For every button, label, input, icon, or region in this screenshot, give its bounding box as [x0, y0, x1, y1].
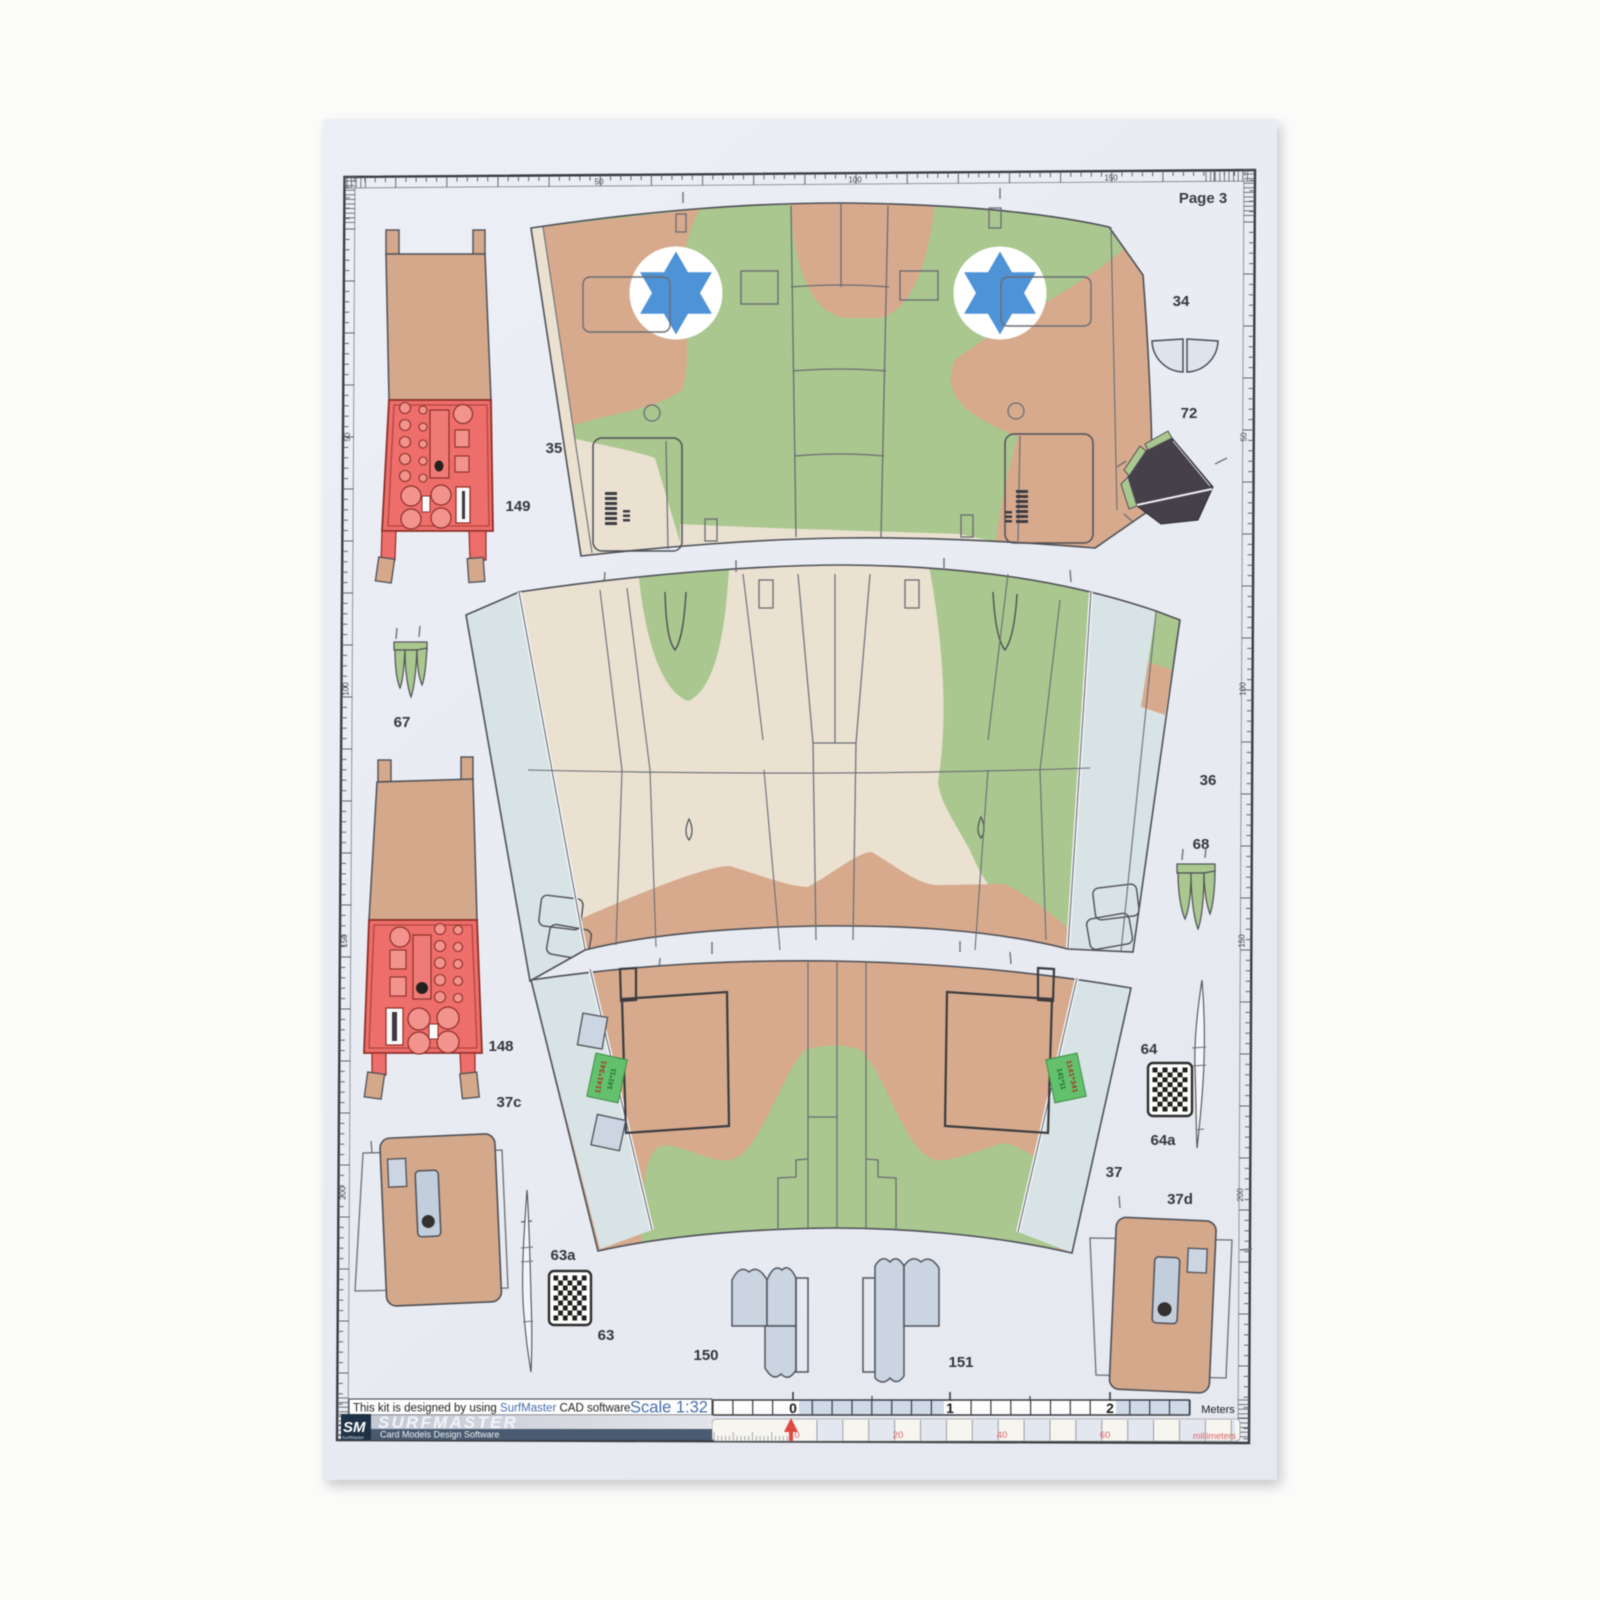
svg-text:151: 151 — [948, 1354, 973, 1371]
svg-text:Card Models Design Software: Card Models Design Software — [380, 1430, 500, 1440]
svg-text:63a: 63a — [550, 1247, 576, 1264]
svg-text:37d: 37d — [1167, 1191, 1193, 1208]
svg-text:1: 1 — [946, 1400, 954, 1416]
svg-text:68: 68 — [1193, 836, 1210, 853]
svg-text:SM: SM — [343, 1419, 366, 1436]
svg-text:72: 72 — [1181, 405, 1198, 422]
svg-text:63: 63 — [598, 1327, 615, 1344]
svg-text:millimeters: millimeters — [1193, 1431, 1237, 1441]
svg-text:50: 50 — [1240, 432, 1249, 441]
svg-text:150: 150 — [693, 1347, 718, 1364]
svg-text:149: 149 — [505, 498, 530, 515]
svg-text:64a: 64a — [1150, 1132, 1176, 1149]
svg-text:Scale 1:32: Scale 1:32 — [630, 1399, 708, 1417]
svg-text:0: 0 — [789, 1400, 797, 1416]
svg-text:35: 35 — [546, 440, 563, 457]
svg-text:100: 100 — [848, 176, 862, 185]
svg-text:150: 150 — [1104, 174, 1118, 183]
svg-text:37c: 37c — [496, 1094, 521, 1111]
svg-text:2: 2 — [1106, 1400, 1114, 1416]
svg-text:Page 3: Page 3 — [1179, 190, 1227, 207]
svg-text:200: 200 — [1236, 1188, 1245, 1202]
svg-text:64: 64 — [1141, 1041, 1158, 1058]
svg-text:SurfMaster: SurfMaster — [342, 1435, 365, 1440]
svg-text:100: 100 — [342, 682, 351, 696]
svg-text:100: 100 — [1239, 682, 1248, 696]
svg-text:150: 150 — [1237, 934, 1246, 948]
svg-text:34: 34 — [1173, 293, 1190, 310]
svg-text:20: 20 — [893, 1430, 904, 1441]
svg-text:200: 200 — [339, 1186, 348, 1200]
svg-text:60: 60 — [1100, 1430, 1111, 1441]
svg-text:36: 36 — [1200, 772, 1217, 789]
svg-text:50: 50 — [343, 432, 352, 441]
svg-text:150: 150 — [340, 934, 349, 948]
svg-text:37: 37 — [1106, 1164, 1123, 1181]
svg-text:Meters: Meters — [1201, 1404, 1235, 1416]
svg-text:67: 67 — [394, 714, 411, 731]
svg-text:40: 40 — [997, 1430, 1008, 1441]
svg-text:50: 50 — [595, 178, 604, 187]
svg-text:148: 148 — [488, 1038, 513, 1055]
